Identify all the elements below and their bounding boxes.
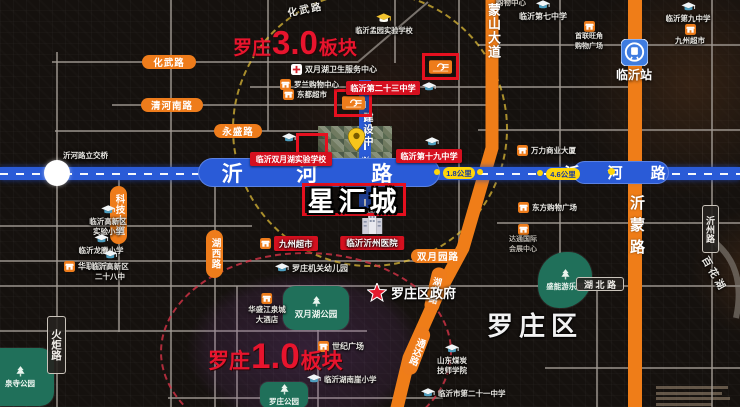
distance-badge-4-6km: 4.6公里 xyxy=(546,168,580,180)
cap-icon xyxy=(425,137,439,148)
cap-icon xyxy=(282,133,296,144)
road-label-mengshan-dadao-label: 蒙山大道 xyxy=(486,3,501,59)
poi-gaoxin-primary: 临沂高新区实验小学 xyxy=(89,205,127,237)
cap-icon xyxy=(275,263,289,274)
poi-health-center: 双月湖卫生服务中心 xyxy=(291,64,377,75)
distance-badge-1-8km: 1.8公里 xyxy=(443,167,475,179)
banner-shuangyuehu-school-label: 临沂双月湖实验学校 xyxy=(256,154,326,165)
poi-no21-school: 临沂市第二十一中学 xyxy=(421,388,506,399)
road-pill-qinghenan-label: 清河南路 xyxy=(151,98,193,112)
road-label-yimeng: 沂蒙路 xyxy=(626,195,647,261)
road-pill-huawu: 化武路 xyxy=(142,55,196,69)
poi-no9-school: 临沂第九中学 xyxy=(666,2,711,23)
poi-luozhuang-government-label: 罗庄区政府 xyxy=(391,283,456,302)
cap-icon xyxy=(681,2,695,13)
cap-icon xyxy=(536,0,550,11)
poi-no21-school-label: 临沂市第二十一中学 xyxy=(438,388,506,399)
capy-icon xyxy=(376,13,391,25)
road-banner-yihe-east: 沂 河 路 xyxy=(573,161,669,184)
map-canvas: 化武路购物中心化武路清河南路永盛路双月园路科技大道湖西路火炬路沂州路湖 北 路蒙… xyxy=(0,0,740,407)
road-pill-yongsheng-label: 永盛路 xyxy=(222,124,254,138)
poi-wanli-tower: 万力商业大厦 xyxy=(517,145,576,156)
poi-huasheng-hotel: 华盛江泉城大酒店 xyxy=(248,293,286,325)
shop-icon xyxy=(584,21,595,32)
poi-jiguan-kindergarten: 罗庄机关幼儿园 xyxy=(275,263,348,274)
poi-jiuzhou-market-ne-label: 九州超市 xyxy=(675,36,705,45)
poi-luozhuang-government: 罗庄区政府 xyxy=(367,283,456,302)
road-label-yimeng-label: 沂蒙路 xyxy=(628,195,645,261)
poi-mengyuan-school: 临沂孟园实验学校 xyxy=(355,13,413,35)
poi-datong-center-label-2: 会展中心 xyxy=(509,246,537,255)
banner-no23-school: 临沂第二十三中学 xyxy=(346,81,420,95)
poi-dongfang-plaza-label: 东方购物广场 xyxy=(532,202,577,213)
poi-shoulian-mall-label-2: 购物广场 xyxy=(575,43,603,52)
area-label-luozhuang-3-number: 3.0 xyxy=(272,24,318,62)
road-label-mengshan-dadao: 蒙山大道 xyxy=(484,3,503,59)
banner-no19-school-label: 临沂第十九中学 xyxy=(400,150,457,162)
area-label-luozhuang-district: 罗庄区 xyxy=(487,306,583,343)
road-pill-huoju: 火炬路 xyxy=(47,316,66,374)
area-label-luozhuang-3-prefix: 罗庄 xyxy=(233,33,271,60)
road-pill-yizhou: 沂州路 xyxy=(702,205,719,253)
road-pill-huxi: 湖西路 xyxy=(206,230,223,278)
logo-icon xyxy=(342,96,365,110)
tree-icon xyxy=(561,269,570,280)
banner-shuangyuehu-school: 临沂双月湖实验学校 xyxy=(250,152,332,166)
shop-icon xyxy=(260,238,271,249)
label-yihe-interchange: 沂河路立交桥 xyxy=(63,150,108,161)
area-label-luozhuang-3: 罗庄3.0板块 xyxy=(233,24,357,62)
project-name: 星汇城 xyxy=(308,180,401,219)
road-pill-yizhou-label: 沂州路 xyxy=(704,216,717,243)
area-label-luozhuang-1-number: 1.0 xyxy=(251,337,300,377)
area-label-luozhuang-district-label: 罗庄区 xyxy=(487,311,583,341)
cap-icon xyxy=(94,234,108,245)
label-yihe-interchange-label: 沂河路立交桥 xyxy=(63,151,108,160)
poi-shoulian-mall: 首联旺角购物广场 xyxy=(575,21,603,52)
poi-jiuzhou-market-w: 九州超市 xyxy=(260,236,304,251)
road-pill-shuangyueyuan-label: 双月园路 xyxy=(417,249,459,263)
poi-dongdu-market-label: 东都超市 xyxy=(297,89,327,100)
park-shuangyuehu-label: 双月湖公园 xyxy=(295,308,338,320)
poi-mengyuan-school-label: 临沂孟园实验学校 xyxy=(355,26,413,35)
poi-no28-school: 临沂高新区二十八中 xyxy=(91,250,129,282)
banner-no19-school: 临沂第十九中学 xyxy=(396,149,462,163)
route-dot-1 xyxy=(434,169,440,175)
cap-icon xyxy=(445,344,459,355)
road-pill-huxi-label: 湖西路 xyxy=(208,238,222,270)
distance-badge-4-6km-label: 4.6公里 xyxy=(550,169,575,180)
poi-dongfang-plaza: 东方购物广场 xyxy=(518,202,577,213)
poi-jiuzhou-market-ne: 九州超市 xyxy=(675,24,705,45)
poi-no23-cap xyxy=(422,82,436,93)
cap-icon xyxy=(103,250,117,261)
route-dot-4 xyxy=(608,168,615,175)
poi-shoulian-mall-label: 首联旺角 xyxy=(575,33,603,42)
distance-badge-1-8km-label: 1.8公里 xyxy=(446,168,471,179)
poi-yizhou-hospital-label: 临沂沂州医院 xyxy=(340,236,404,250)
poi-no28-school-label: 临沂高新区 xyxy=(91,262,129,271)
poi-linyi-station: 临沂站 xyxy=(616,39,652,83)
poi-wanli-tower-label: 万力商业大厦 xyxy=(531,145,576,156)
cross-icon xyxy=(291,64,302,75)
park-quansi-label: 泉寺公园 xyxy=(5,378,35,389)
poi-huasheng-hotel-label-2: 大酒店 xyxy=(256,315,279,324)
area-label-luozhuang-3-suffix: 板块 xyxy=(319,33,357,60)
logo-icon xyxy=(429,60,452,74)
shop-icon xyxy=(518,224,529,235)
poi-no9-school-label: 临沂第九中学 xyxy=(666,14,711,23)
poi-no19-cap xyxy=(425,137,439,148)
road-pill-shuangyueyuan: 双月园路 xyxy=(411,249,465,263)
interchange-circle xyxy=(44,160,70,186)
park-luozhuang: 罗庄公园 xyxy=(260,382,308,407)
poi-dongdu-market: 东都超市 xyxy=(283,89,327,100)
poi-meitan-college-label-2: 技师学院 xyxy=(437,366,467,375)
park-shuangyuehu: 双月湖公园 xyxy=(283,286,349,330)
tree-icon xyxy=(280,384,289,395)
shop-icon xyxy=(518,202,529,213)
road-banner-yihe-east-label: 沂 河 路 xyxy=(564,162,677,183)
shop-icon xyxy=(517,145,528,156)
park-luozhuang-label: 罗庄公园 xyxy=(269,396,299,407)
poi-datong-center: 达通国际会展中心 xyxy=(509,224,537,255)
road-pill-hubei: 湖 北 路 xyxy=(576,277,624,291)
park-quansi: 泉寺公园 xyxy=(0,348,54,406)
poi-gaoxin-primary-label: 临沂高新区 xyxy=(89,217,127,226)
route-dot-3 xyxy=(537,170,543,176)
project-marker-xinghuicheng: 星汇城 xyxy=(302,183,406,216)
poi-no7-school-label: 临沂第七中学 xyxy=(519,12,567,22)
banner-no23-school-label: 临沂第二十三中学 xyxy=(350,82,416,94)
cap-icon xyxy=(101,205,115,216)
project-logo-box-north xyxy=(422,53,459,80)
cap-icon xyxy=(422,82,436,93)
road-pill-huoju-label: 火炬路 xyxy=(49,329,64,361)
poi-meitan-college-label: 山东煤炭 xyxy=(437,356,467,365)
location-pin xyxy=(348,128,365,156)
poi-meitan-college: 山东煤炭技师学院 xyxy=(437,344,467,376)
tree-icon xyxy=(16,366,25,377)
poi-health-center-label: 双月湖卫生服务中心 xyxy=(305,64,377,75)
star-icon xyxy=(367,283,387,302)
poi-datong-center-label: 达通国际 xyxy=(509,236,537,245)
shop-icon xyxy=(262,293,273,304)
road-pill-yongsheng: 永盛路 xyxy=(214,124,262,138)
area-label-luozhuang-1-prefix: 罗庄 xyxy=(208,345,250,375)
poi-jiuzhou-market-w-label: 九州超市 xyxy=(274,236,318,251)
road-pill-hubei-label: 湖 北 路 xyxy=(584,278,616,291)
shop-icon xyxy=(283,89,294,100)
tree-icon xyxy=(312,296,321,307)
poi-huasheng-hotel-label: 华盛江泉城 xyxy=(248,305,286,314)
road-pill-huawu-label: 化武路 xyxy=(153,55,185,69)
area-label-luozhuang-1: 罗庄1.0板块 xyxy=(208,337,343,377)
train-icon xyxy=(620,39,647,66)
area-label-luozhuang-1-suffix: 板块 xyxy=(301,345,343,375)
poi-shuangyuehu-cap xyxy=(282,133,296,144)
poi-no28-school-label-2: 二十八中 xyxy=(95,272,125,281)
poi-jiguan-kindergarten-label: 罗庄机关幼儿园 xyxy=(292,263,348,274)
shop-icon xyxy=(64,261,75,272)
route-dot-2 xyxy=(477,169,483,175)
poi-no7-school: 临沂第七中学 xyxy=(519,0,567,22)
cap-icon xyxy=(421,388,435,399)
poi-linyi-station-label: 临沂站 xyxy=(616,68,652,83)
shop-icon xyxy=(685,24,696,35)
pin-icon xyxy=(348,128,365,151)
road-pill-qinghenan: 清河南路 xyxy=(141,98,203,112)
